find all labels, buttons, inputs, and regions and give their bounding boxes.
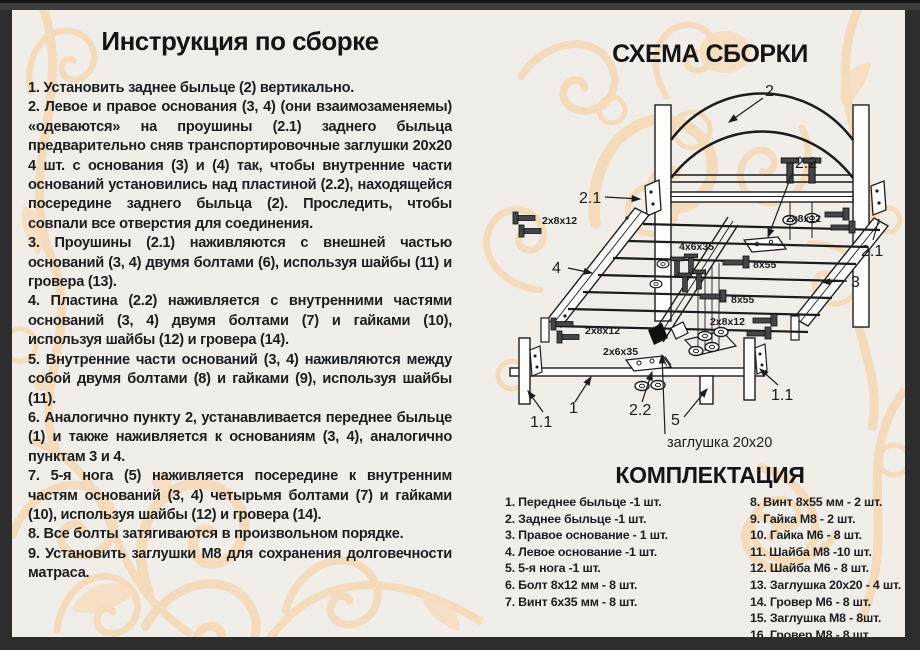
part-item: 15. Заглушка М8 - 8шт. xyxy=(750,610,905,627)
lug-right-drawing xyxy=(871,181,886,215)
label-screws-center: 4x6x35 xyxy=(679,241,714,253)
part-item: 11. Шайба М8 -10 шт. xyxy=(750,544,905,561)
instruction-step-3: 3. Проушины (2.1) наживляются с внешней … xyxy=(28,234,452,292)
front-leg-right-drawing xyxy=(744,338,755,400)
label-screws-front: 2x6x35 xyxy=(603,346,638,358)
parts-list-left-column: 1. Переднее быльце -1 шт. 2. Заднее быль… xyxy=(505,494,745,610)
part-item: 6. Болт 8х12 мм - 8 шт. xyxy=(505,577,745,594)
part-item: 9. Гайка М8 - 2 шт. xyxy=(750,511,905,528)
label-plate-front: 2.2 xyxy=(629,402,651,419)
part-item: 13. Заглушка 20х20 - 4 шт. xyxy=(750,577,905,594)
bolts-2x8x12-c-drawing xyxy=(551,318,579,343)
screw-8x55-b-drawing xyxy=(700,290,726,302)
front-leg-left-drawing xyxy=(519,338,530,404)
label-front-leg-left: 1.1 xyxy=(530,414,552,431)
label-bolts-a: 2x8x12 xyxy=(542,215,577,227)
part-item: 4. Левое основание -1 шт. xyxy=(505,544,745,561)
instruction-step-5: 5. Внутренние части оснований (3, 4) наж… xyxy=(28,351,452,409)
cap-note-label: заглушка 20x20 xyxy=(667,435,772,451)
part-item: 3. Правое основание - 1 шт. xyxy=(505,527,745,544)
label-bolts-d: 2x8x12 xyxy=(710,316,745,328)
label-plate-top: 2.2 xyxy=(795,155,817,172)
instruction-step-2: 2. Левое и правое основания (3, 4) (они … xyxy=(28,98,452,234)
part-item: 16. Гровер М8 - 8 шт. xyxy=(750,627,905,637)
label-fifth-leg: 5 xyxy=(671,412,680,429)
screw-8x55-a-drawing xyxy=(723,256,749,268)
part-item: 10. Гайка М6 - 8 шт. xyxy=(750,527,905,544)
assembly-instructions-section: Инструкция по сборке 1. Установить задне… xyxy=(28,22,452,584)
label-lug-right: 2.1 xyxy=(861,243,883,260)
instruction-step-9: 9. Установить заглушки М8 для сохранения… xyxy=(28,545,452,584)
instruction-step-7: 7. 5-я нога (5) наживляется посередине к… xyxy=(28,467,452,525)
frame-border-top xyxy=(0,0,920,10)
part-item: 1. Переднее быльце -1 шт. xyxy=(505,494,745,511)
bolts-2x8x12-d-drawing xyxy=(747,314,777,339)
label-headboard: 2 xyxy=(765,83,774,100)
label-lug-left: 2.1 xyxy=(579,190,601,207)
part-item: 8. Винт 8х55 мм - 2 шт. xyxy=(750,494,905,511)
parts-list-title: КОМПЛЕКТАЦИЯ xyxy=(500,462,905,489)
label-bolts-c: 2x8x12 xyxy=(585,325,620,337)
label-bolts-b: 2x8x12 xyxy=(786,213,821,225)
label-front-rail: 1 xyxy=(569,400,578,417)
instructions-title: Инструкция по сборке xyxy=(28,26,452,57)
part-item: 12. Шайба М6 - 8 шт. xyxy=(750,560,905,577)
bolts-2x8x12-a-drawing xyxy=(513,212,541,237)
front-washer-cluster-drawing xyxy=(685,328,736,356)
instruction-step-1: 1. Установить заднее быльце (2) вертикал… xyxy=(28,79,452,98)
label-base-left: 4 xyxy=(552,260,561,277)
label-screw-long-b: 8x55 xyxy=(731,294,755,306)
instruction-step-4: 4. Пластина (2.2) наживляется с внутренн… xyxy=(28,292,452,350)
label-front-leg-right: 1.1 xyxy=(771,387,793,404)
instruction-step-6: 6. Аналогично пункту 2, устанавливается … xyxy=(28,409,452,467)
instruction-sheet-page: Инструкция по сборке 1. Установить задне… xyxy=(12,10,905,637)
part-item: 7. Винт 6х35 мм - 8 шт. xyxy=(505,594,745,611)
label-base-right: 3 xyxy=(851,274,860,291)
part-item: 5. 5-я нога -1 шт. xyxy=(505,560,745,577)
instruction-step-8: 8. Все болты затягиваются в произвольном… xyxy=(28,525,452,544)
assembly-diagram: 2 2.1 2.1 2.2 4 3 1.1 1.1 1 2.2 xyxy=(495,72,905,464)
part-item: 14. Гровер М6 - 8 шт. xyxy=(750,594,905,611)
label-screw-long-a: 8x55 xyxy=(753,259,777,271)
lug-left-drawing xyxy=(645,180,661,216)
part-item: 2. Заднее быльце -1 шт. xyxy=(505,511,745,528)
parts-list-right-column: 8. Винт 8х55 мм - 2 шт. 9. Гайка М8 - 2 … xyxy=(750,494,905,637)
schema-title: СХЕМА СБОРКИ xyxy=(500,40,905,69)
